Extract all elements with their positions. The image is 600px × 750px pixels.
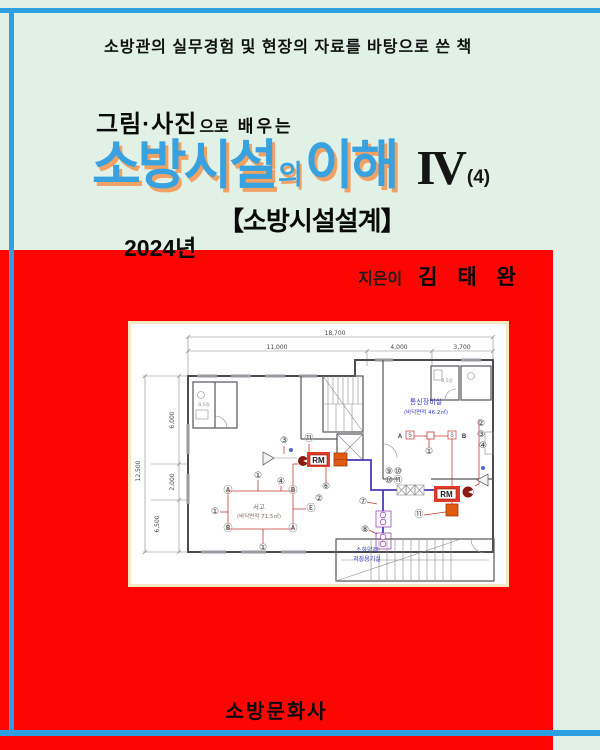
plan-symbol: ③ bbox=[280, 436, 288, 446]
point-a-label: A bbox=[398, 434, 403, 440]
agent-cylinder-icon bbox=[446, 504, 458, 516]
rm-station-1: RM bbox=[263, 448, 347, 467]
main-title: 소방시설 의 이해 IV (4) bbox=[92, 139, 490, 192]
title-volume-numeral: IV bbox=[416, 143, 462, 192]
rm-label-1: RM bbox=[312, 456, 325, 465]
room-toilet-right: B,S실 bbox=[441, 377, 453, 384]
detector-dot-icon bbox=[289, 448, 293, 452]
book-cover: 소방관의 실무경험 및 현장의 자료를 바탕으로 쓴 책 그림·사진으로배우는 … bbox=[0, 0, 600, 750]
subtitle-particle: 으로 bbox=[199, 119, 228, 136]
author-label: 지은이 bbox=[358, 265, 402, 289]
stair-core bbox=[323, 376, 363, 432]
plan-symbol: ③ bbox=[477, 430, 485, 440]
publication-year: 2024년 bbox=[124, 229, 196, 263]
room-agent-line1: 소화약제 bbox=[356, 546, 378, 554]
plan-symbol: ① bbox=[254, 471, 262, 481]
plan-symbol: ② bbox=[315, 494, 323, 504]
plan-symbol: ⑪ bbox=[304, 433, 313, 444]
cover-tagline: 소방관의 실무경험 및 현장의 자료를 바탕으로 쓴 책 bbox=[104, 33, 472, 57]
plan-symbol: ⑥ bbox=[322, 482, 330, 492]
room-archive-name: 서고 bbox=[253, 502, 265, 511]
horn-speaker-icon bbox=[263, 452, 274, 465]
title-particle: 의 bbox=[275, 162, 305, 192]
dim-width-left: 11,000 bbox=[267, 344, 288, 351]
publisher-name: 소방문화사 bbox=[0, 695, 553, 724]
room-toilet-left: B,S실 bbox=[198, 401, 210, 408]
plan-symbol: ② bbox=[477, 419, 485, 429]
room-archive-area: (바닥면적 71.5㎡) bbox=[237, 512, 281, 520]
plan-symbol: ⑧ bbox=[361, 525, 369, 535]
dim-height-total: 12,500 bbox=[135, 460, 142, 481]
title-volume-note: (4) bbox=[467, 168, 490, 192]
point-b-label: B bbox=[462, 434, 467, 440]
plan-symbol: Ⓔ bbox=[306, 503, 315, 514]
author-line: 지은이 김 태 완 bbox=[358, 261, 523, 291]
rm-label-2: RM bbox=[440, 490, 453, 499]
cover-subtitle: 그림·사진으로배우는 bbox=[96, 104, 294, 139]
plan-symbol: ⑪ bbox=[414, 509, 423, 520]
title-part2: 이해 bbox=[305, 139, 397, 192]
plan-symbol: ① bbox=[425, 447, 433, 457]
dim-width-mid: 4,000 bbox=[390, 344, 407, 351]
floorplan-drawing: 18,700 11,000 4,000 3,700 12,500 6,000 2… bbox=[131, 324, 506, 584]
sprinkler-piping bbox=[220, 419, 479, 543]
subtitle-lead: 그림·사진 bbox=[96, 111, 197, 138]
plan-symbol: ⑩ bbox=[385, 476, 393, 486]
pipe-dampers bbox=[397, 485, 424, 495]
author-name: 김 태 완 bbox=[418, 261, 523, 291]
room-comm-name: 통신장비실 bbox=[410, 397, 442, 406]
room-comm-area: (바닥면적 46.2㎡) bbox=[404, 408, 448, 416]
dim-width-right: 3,700 bbox=[453, 344, 470, 351]
floorplan-image: 18,700 11,000 4,000 3,700 12,500 6,000 2… bbox=[128, 321, 509, 587]
cover-content: 소방관의 실무경험 및 현장의 자료를 바탕으로 쓴 책 그림·사진으로배우는 … bbox=[0, 0, 600, 750]
dim-height-upper: 6,000 bbox=[169, 411, 176, 428]
dim-height-mid: 2,000 bbox=[169, 473, 176, 490]
subtitle-tail: 배우는 bbox=[238, 117, 294, 136]
plan-symbol: Ⓑ bbox=[288, 485, 297, 496]
dimension-lines bbox=[143, 335, 495, 554]
plan-symbol: Ⓐ bbox=[288, 523, 297, 534]
plan-symbol: ⑪ bbox=[393, 475, 402, 486]
plan-symbol: ④ bbox=[277, 477, 285, 487]
dim-height-lower: 6,500 bbox=[154, 515, 161, 532]
detector-dot-icon bbox=[481, 466, 485, 470]
plan-symbol: ① bbox=[259, 543, 267, 553]
plan-symbol: ④ bbox=[479, 441, 487, 451]
plan-symbol: ⑦ bbox=[359, 497, 367, 507]
plan-symbol: Ⓐ bbox=[223, 485, 232, 496]
title-part1: 소방시설 bbox=[92, 139, 275, 192]
dim-total-width: 18,700 bbox=[325, 330, 346, 337]
edition-banner: 【소방시설설계】 bbox=[218, 201, 406, 238]
plan-symbol: ① bbox=[211, 507, 219, 517]
rm-station-2: RM bbox=[434, 466, 488, 516]
room-agent-line2: 저장용기실 bbox=[353, 555, 381, 563]
plan-symbol: Ⓑ bbox=[223, 523, 232, 534]
